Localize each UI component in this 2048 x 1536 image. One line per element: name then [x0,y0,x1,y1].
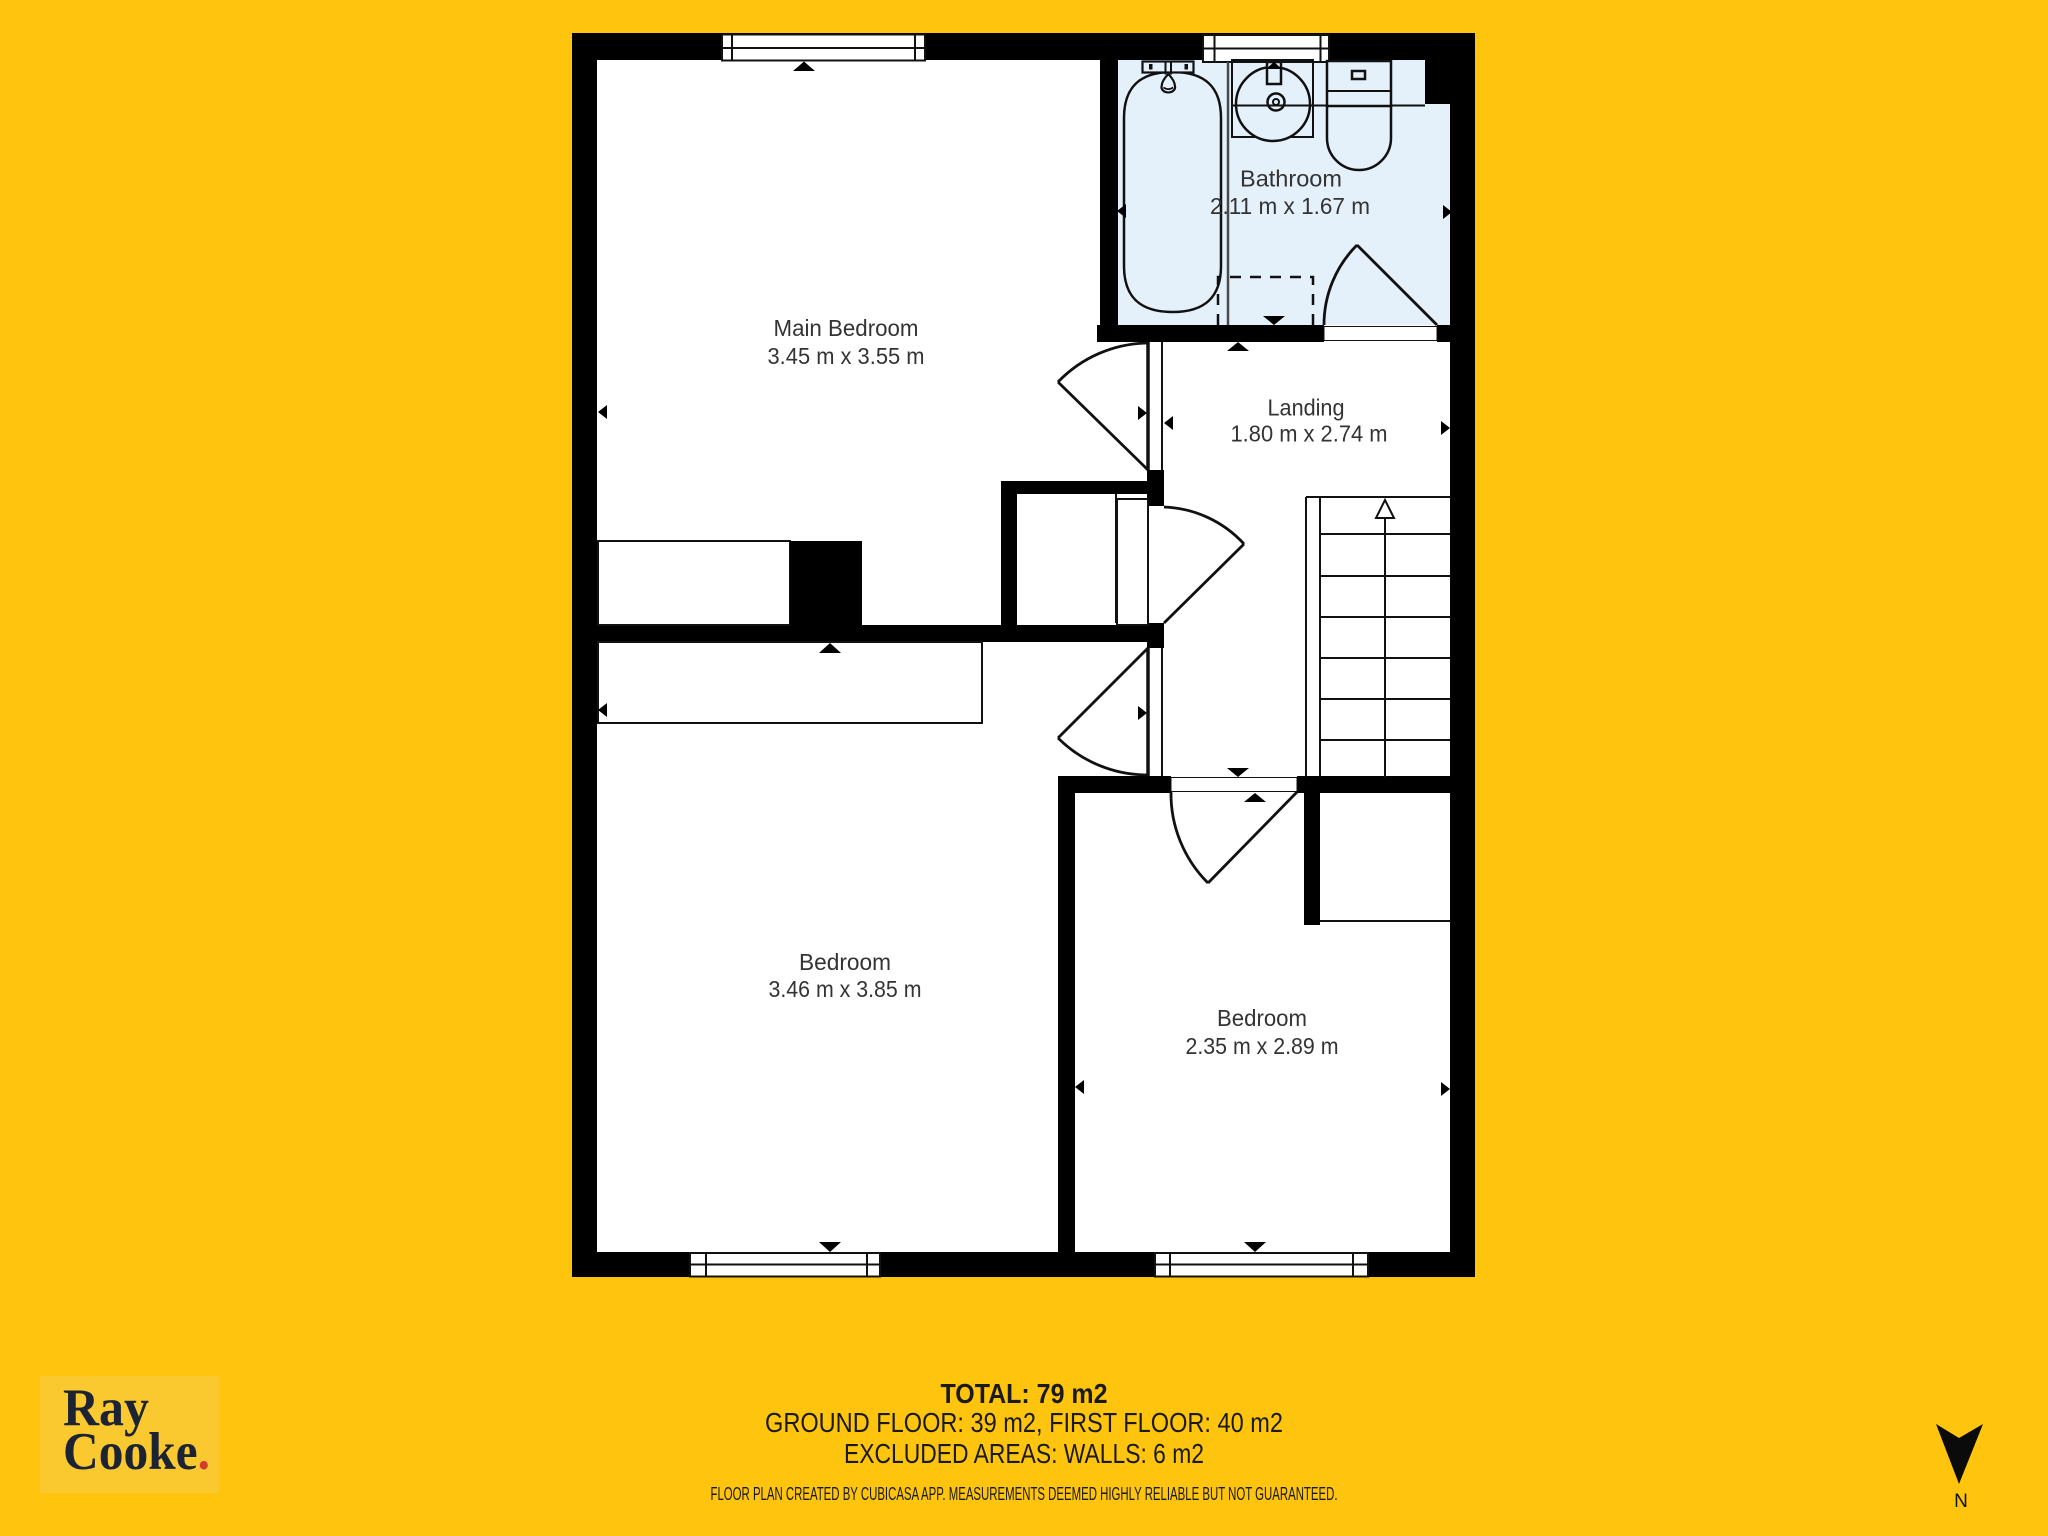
svg-text:EXCLUDED AREAS: WALLS: 6 m2: EXCLUDED AREAS: WALLS: 6 m2 [844,1438,1204,1469]
svg-text:Bedroom: Bedroom [1217,1005,1307,1031]
svg-text:TOTAL: 79 m2: TOTAL: 79 m2 [941,1378,1108,1409]
svg-text:Bathroom: Bathroom [1240,166,1342,192]
svg-text:3.45 m x 3.55 m: 3.45 m x 3.55 m [768,343,925,369]
svg-text:FLOOR PLAN CREATED BY CUBICASA: FLOOR PLAN CREATED BY CUBICASA APP. MEAS… [711,1484,1338,1504]
svg-text:Main Bedroom: Main Bedroom [774,315,919,341]
svg-text:2.35 m x 2.89 m: 2.35 m x 2.89 m [1186,1033,1339,1059]
svg-text:N: N [1954,1491,1968,1512]
svg-text:3.46 m x 3.85 m: 3.46 m x 3.85 m [769,976,922,1002]
svg-text:2.11 m x 1.67 m: 2.11 m x 1.67 m [1210,193,1370,219]
svg-text:Landing: Landing [1268,395,1345,421]
svg-text:1.80 m x 2.74 m: 1.80 m x 2.74 m [1231,421,1388,447]
svg-text:Cooke.: Cooke. [63,1423,210,1481]
svg-text:GROUND FLOOR: 39 m2, FIRST FLO: GROUND FLOOR: 39 m2, FIRST FLOOR: 40 m2 [765,1407,1283,1438]
svg-text:Bedroom: Bedroom [799,949,891,975]
